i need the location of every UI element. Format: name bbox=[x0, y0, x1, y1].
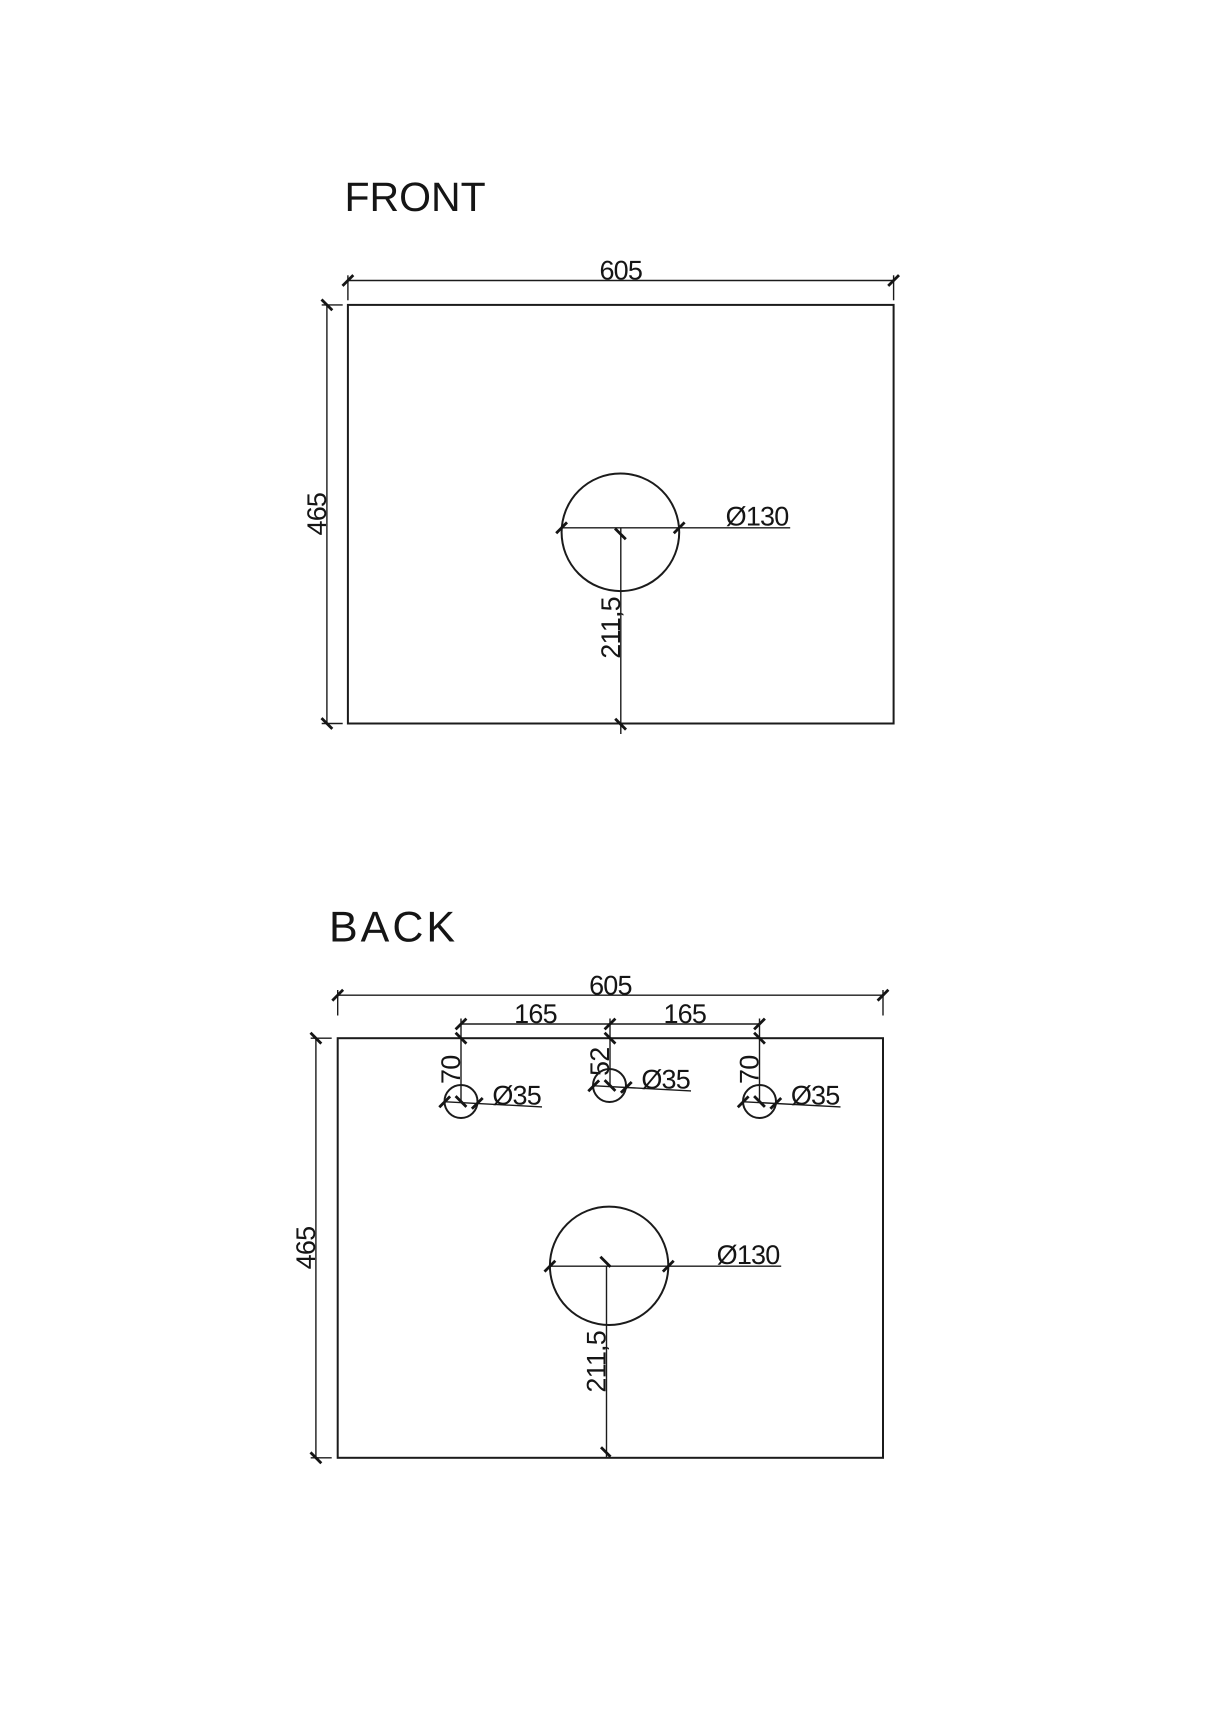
svg-text:FRONT: FRONT bbox=[345, 174, 486, 220]
svg-text:165: 165 bbox=[663, 999, 706, 1029]
svg-text:165: 165 bbox=[514, 999, 557, 1029]
svg-text:211,5: 211,5 bbox=[596, 597, 626, 659]
svg-text:70: 70 bbox=[436, 1056, 466, 1084]
svg-text:BACK: BACK bbox=[329, 904, 458, 952]
svg-text:Ø35: Ø35 bbox=[492, 1081, 541, 1111]
svg-text:70: 70 bbox=[735, 1056, 765, 1084]
svg-text:465: 465 bbox=[302, 493, 332, 536]
svg-text:605: 605 bbox=[599, 256, 642, 286]
svg-text:Ø130: Ø130 bbox=[717, 1240, 780, 1270]
svg-text:465: 465 bbox=[291, 1227, 321, 1270]
svg-text:605: 605 bbox=[589, 970, 632, 1000]
svg-text:Ø130: Ø130 bbox=[726, 502, 789, 532]
svg-text:211,5: 211,5 bbox=[582, 1331, 612, 1393]
svg-text:Ø35: Ø35 bbox=[641, 1065, 690, 1095]
svg-text:Ø35: Ø35 bbox=[791, 1081, 840, 1111]
